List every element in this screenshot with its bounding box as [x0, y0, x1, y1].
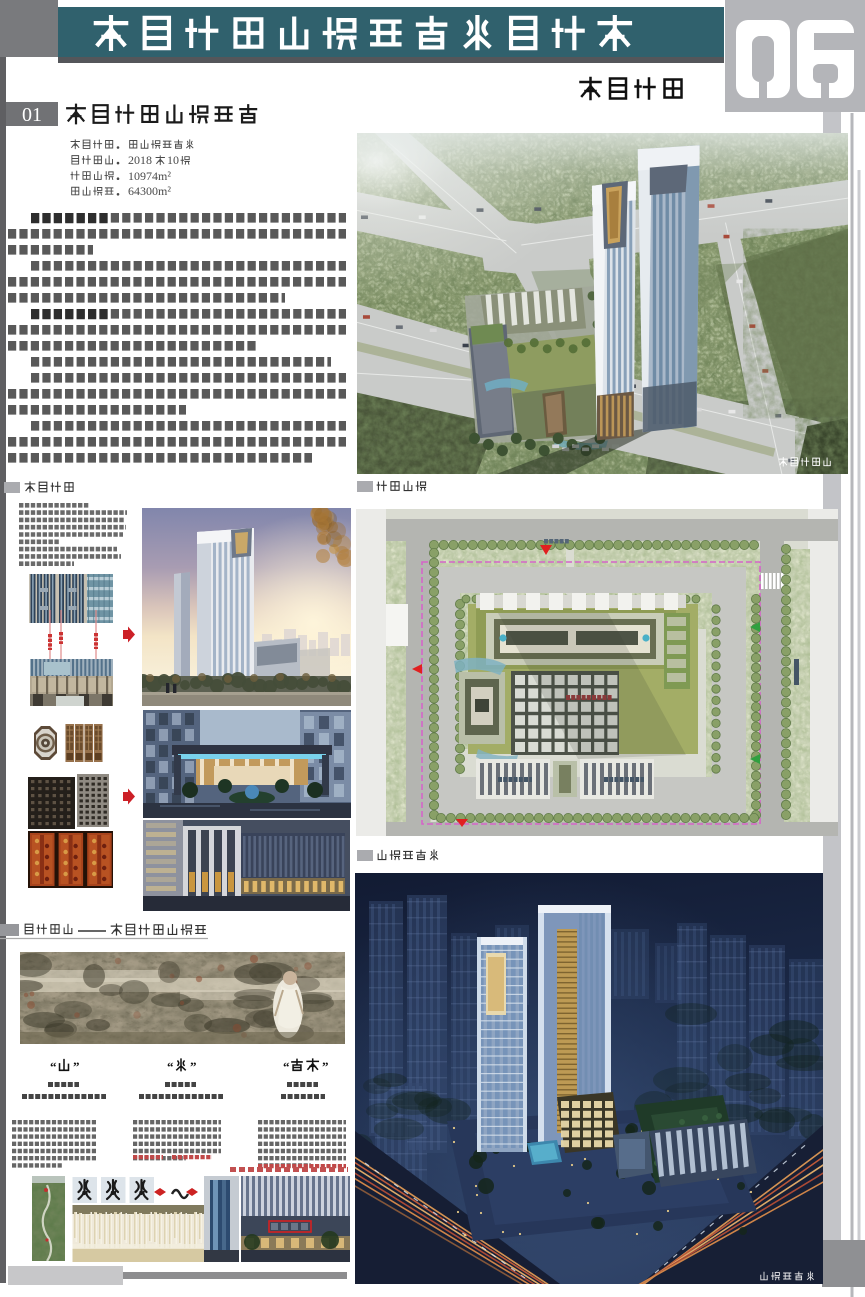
svg-text:10974m²: 10974m²: [128, 169, 171, 183]
svg-text:“: “: [283, 1059, 290, 1074]
svg-text:01: 01: [22, 104, 42, 126]
svg-text:“: “: [167, 1059, 174, 1074]
svg-text:64300m²: 64300m²: [128, 184, 171, 198]
svg-text:10: 10: [167, 153, 179, 167]
svg-text:”: ”: [190, 1059, 197, 1074]
svg-text:”: ”: [322, 1059, 329, 1074]
svg-text:“: “: [50, 1059, 57, 1074]
svg-text:”: ”: [73, 1059, 80, 1074]
svg-text:2018: 2018: [128, 153, 152, 167]
